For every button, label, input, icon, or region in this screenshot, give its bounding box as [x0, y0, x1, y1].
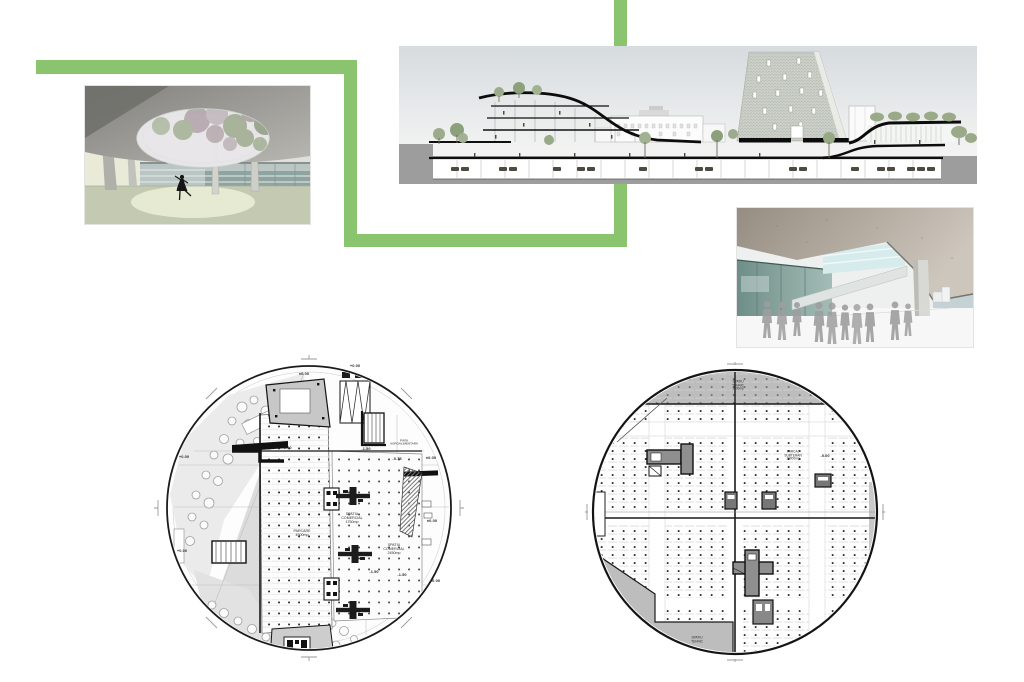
label-comercial-2: SPATIU COMERCIAL 2450mp — [383, 543, 404, 555]
label-piata: PIATA AGROALIMENTARA — [390, 440, 418, 447]
ground-floor-plan-graphic — [154, 355, 464, 661]
accent-line-left-vertical — [344, 60, 357, 247]
accent-line-bottom — [344, 234, 627, 247]
basement-plan-graphic — [585, 362, 885, 662]
label-tehnic-top: SPATIU TEHNIC 1600mp — [732, 380, 744, 391]
label-level-e: -1.50 — [369, 570, 378, 574]
section-graphic — [399, 46, 977, 190]
figure-courtyard-render — [85, 86, 310, 224]
plan-ground-floor: ±0.00 +0.00 -1.50 -1.50 PIATA AGROALIMEN… — [154, 355, 464, 661]
accent-line-top — [36, 60, 357, 74]
label-comercial-1: SPATIU COMERCIAL 1750mp — [341, 512, 362, 524]
label-level-c: -0.75 — [392, 457, 401, 461]
label-dim-top: +0.00 — [350, 364, 360, 368]
plan-basement: SPATIU TEHNIC 1600mp PARCAJ SUBTERAN 160… — [585, 362, 885, 662]
label-level-f: -1.50 — [397, 573, 406, 577]
courtyard-render-graphic — [85, 86, 310, 224]
label-parcaj: PARCAJ SUBTERAN 16000mp — [784, 450, 801, 461]
interior-render-graphic — [737, 208, 973, 347]
label-left-b: +0.00 — [177, 549, 187, 553]
presentation-board: ±0.00 +0.00 -1.50 -1.50 PIATA AGROALIMEN… — [0, 0, 1024, 682]
label-tehnic-bottom: SPATIU TEHNIC — [691, 636, 703, 643]
label-level-top: ±0.00 — [299, 372, 309, 376]
label-level-br: ±0.00 — [430, 579, 440, 583]
label-parcare: PARCARE 4500mp — [293, 529, 310, 537]
label-level-basement: -5.00 — [820, 454, 829, 458]
label-left-a: +0.00 — [179, 455, 189, 459]
label-level-a: -1.50 — [282, 446, 291, 450]
figure-interior-render — [737, 208, 973, 347]
label-level-right: ±0.00 — [427, 519, 437, 523]
figure-longitudinal-section — [399, 46, 977, 190]
label-level-d: ±0.00 — [426, 456, 436, 460]
label-level-b: -1.50 — [361, 447, 370, 451]
